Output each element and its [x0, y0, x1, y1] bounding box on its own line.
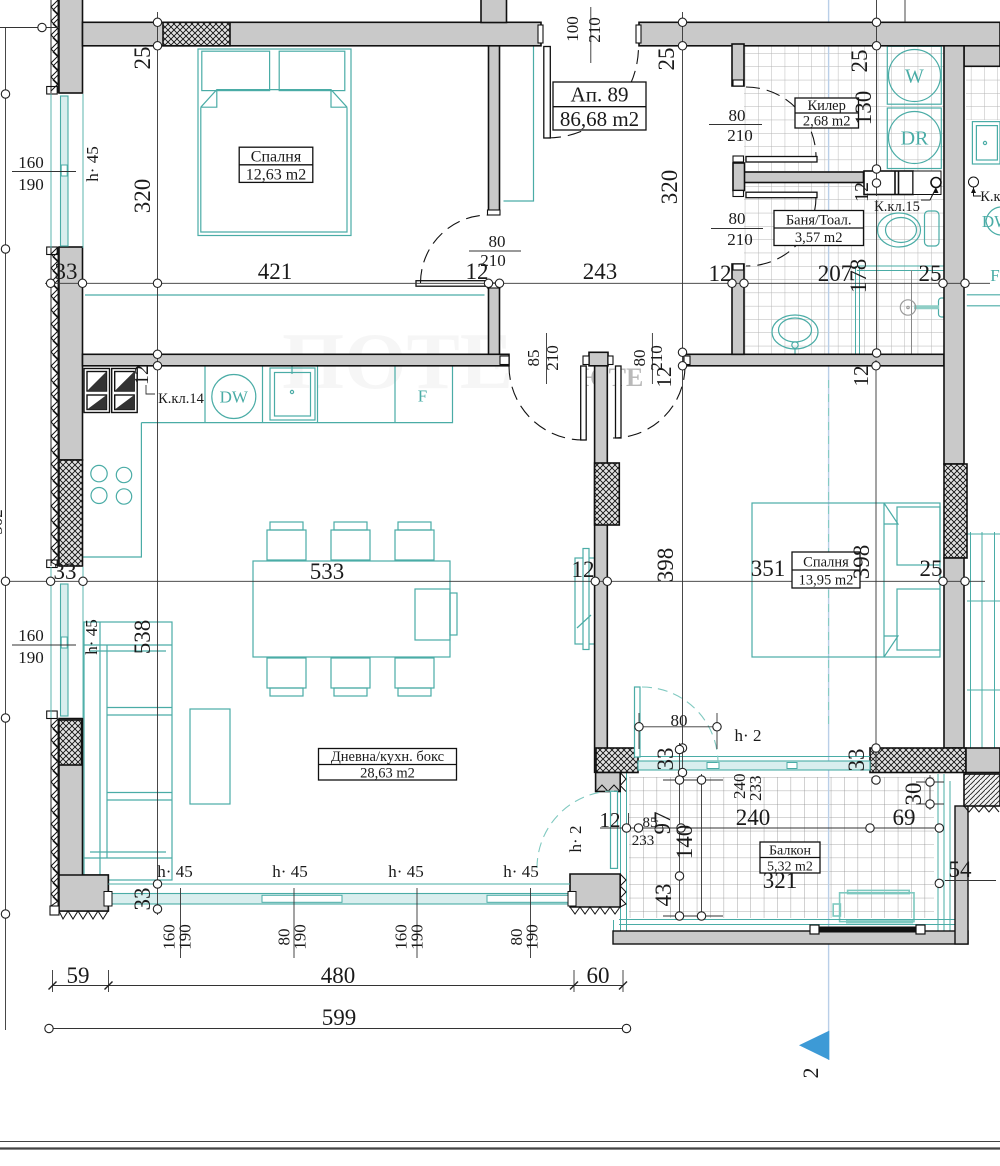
svg-text:h· 45: h· 45 [503, 862, 538, 881]
svg-text:538: 538 [130, 620, 155, 655]
svg-text:59: 59 [67, 963, 90, 988]
svg-text:h· 45: h· 45 [272, 862, 307, 881]
svg-text:12: 12 [709, 261, 732, 286]
svg-text:25: 25 [654, 48, 679, 71]
svg-text:30: 30 [901, 783, 926, 806]
svg-text:h· 2: h· 2 [735, 726, 762, 745]
svg-text:190: 190 [291, 924, 310, 950]
svg-text:33: 33 [130, 888, 155, 911]
svg-text:25: 25 [919, 261, 942, 286]
svg-text:130: 130 [851, 91, 876, 126]
svg-text:F: F [418, 387, 427, 406]
svg-text:F: F [990, 266, 999, 285]
svg-text:43: 43 [651, 884, 676, 907]
svg-text:Баня/Тоал.: Баня/Тоал. [786, 213, 852, 229]
svg-text:210: 210 [543, 345, 562, 371]
svg-text:210: 210 [585, 17, 604, 43]
svg-text:320: 320 [657, 170, 682, 205]
svg-text:33: 33 [54, 559, 77, 584]
svg-text:398: 398 [653, 548, 678, 583]
svg-text:178: 178 [846, 259, 871, 294]
svg-text:h· 45: h· 45 [83, 146, 102, 181]
svg-text:502: 502 [0, 509, 6, 535]
svg-text:К.кл.14: К.кл.14 [158, 391, 204, 407]
svg-text:320: 320 [130, 179, 155, 214]
svg-text:33: 33 [55, 259, 78, 284]
svg-text:190: 190 [18, 175, 44, 194]
svg-text:100: 100 [563, 16, 582, 42]
svg-text:210: 210 [480, 251, 506, 270]
svg-text:80: 80 [489, 232, 506, 251]
svg-text:25: 25 [847, 50, 872, 73]
svg-text:160: 160 [18, 153, 44, 172]
svg-text:12: 12 [600, 808, 621, 832]
svg-text:421: 421 [258, 259, 293, 284]
svg-text:398: 398 [849, 545, 874, 580]
svg-text:Килер: Килер [808, 98, 846, 114]
svg-text:190: 190 [523, 924, 542, 950]
svg-text:h· 45: h· 45 [82, 619, 101, 654]
svg-text:Балкон: Балкон [769, 844, 811, 859]
svg-text:Дневна/кухн. бокс: Дневна/кухн. бокс [331, 749, 444, 765]
svg-text:Спалня: Спалня [803, 555, 849, 571]
svg-text:h· 45: h· 45 [388, 862, 423, 881]
svg-text:12: 12 [849, 366, 873, 387]
svg-text:80: 80 [729, 209, 746, 228]
svg-text:К.кл.15: К.кл.15 [874, 199, 920, 215]
svg-text:12: 12 [131, 365, 153, 385]
svg-text:DR: DR [901, 128, 929, 150]
svg-text:243: 243 [583, 259, 618, 284]
svg-text:321: 321 [763, 868, 798, 893]
svg-text:28,63 m2: 28,63 m2 [360, 766, 415, 782]
svg-text:h· 45: h· 45 [157, 862, 192, 881]
svg-text:60: 60 [587, 963, 610, 988]
svg-text:190: 190 [176, 924, 195, 950]
svg-text:К.кл: К.кл [980, 189, 1000, 205]
svg-text:33: 33 [844, 749, 869, 772]
svg-text:190: 190 [18, 648, 44, 667]
svg-text:12: 12 [572, 557, 595, 582]
svg-text:33: 33 [653, 748, 678, 771]
svg-text:85: 85 [524, 350, 543, 367]
svg-text:210: 210 [647, 345, 666, 371]
svg-text:2: 2 [798, 1068, 823, 1079]
svg-text:233: 233 [746, 776, 765, 802]
svg-text:12: 12 [851, 182, 873, 202]
svg-text:80: 80 [729, 106, 746, 125]
svg-text:h· 2: h· 2 [566, 826, 585, 853]
svg-text:54: 54 [949, 857, 973, 882]
svg-text:140: 140 [672, 825, 697, 860]
svg-text:25: 25 [130, 47, 155, 70]
svg-text:25: 25 [920, 556, 943, 581]
svg-text:13,95 m2: 13,95 m2 [799, 573, 854, 589]
svg-text:DW: DW [220, 388, 249, 407]
svg-text:351: 351 [751, 556, 786, 581]
svg-text:210: 210 [727, 126, 753, 145]
svg-text:599: 599 [322, 1005, 357, 1030]
svg-text:480: 480 [321, 963, 356, 988]
svg-text:160: 160 [18, 626, 44, 645]
svg-text:Спалня: Спалня [251, 149, 302, 166]
svg-text:12,63 m2: 12,63 m2 [246, 167, 306, 184]
svg-text:533: 533 [310, 559, 345, 584]
svg-text:DW: DW [982, 212, 1000, 231]
svg-text:2,68 m2: 2,68 m2 [803, 114, 851, 130]
svg-text:86,68 m2: 86,68 m2 [560, 107, 639, 131]
svg-text:210: 210 [727, 230, 753, 249]
svg-text:190: 190 [408, 924, 427, 950]
svg-text:240: 240 [736, 805, 771, 830]
svg-text:Ап. 89: Ап. 89 [571, 83, 629, 107]
svg-text:69: 69 [893, 805, 916, 830]
svg-text:3,57 m2: 3,57 m2 [795, 230, 843, 246]
svg-text:W: W [905, 66, 924, 88]
svg-text:80: 80 [671, 711, 688, 730]
